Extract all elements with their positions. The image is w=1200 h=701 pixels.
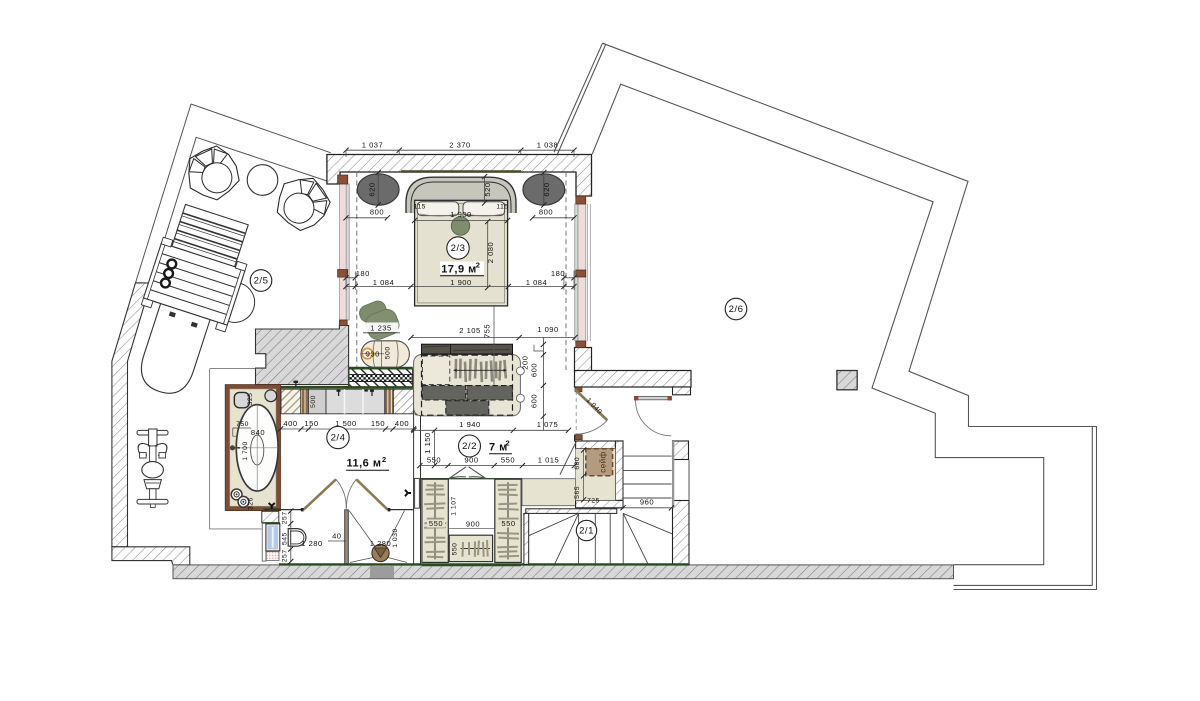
svg-text:115: 115 [414,203,426,210]
svg-text:1 075: 1 075 [537,420,559,429]
svg-text:1 940: 1 940 [459,420,481,429]
svg-text:2 370: 2 370 [449,140,471,149]
svg-text:550: 550 [429,519,443,528]
svg-text:180: 180 [551,269,565,278]
svg-text:17,9 м: 17,9 м [441,264,477,276]
svg-text:200: 200 [521,356,530,370]
svg-text:725: 725 [587,498,600,505]
svg-text:1 235: 1 235 [370,323,392,332]
svg-text:1 084: 1 084 [526,278,548,287]
svg-text:550: 550 [501,519,515,528]
svg-text:2 080: 2 080 [486,242,495,264]
svg-text:2: 2 [382,455,386,464]
svg-text:1 700: 1 700 [242,441,249,461]
svg-text:600: 600 [529,394,538,408]
svg-text:2/1: 2/1 [579,526,594,537]
svg-text:1 150: 1 150 [423,432,432,454]
svg-text:400: 400 [395,419,409,428]
svg-text:550: 550 [501,455,515,464]
svg-text:2: 2 [506,439,510,448]
svg-text:180: 180 [356,269,370,278]
svg-text:500: 500 [384,346,391,359]
svg-text:40: 40 [332,531,341,540]
svg-text:2/4: 2/4 [331,433,346,444]
svg-text:1 084: 1 084 [373,278,395,287]
svg-text:1 280: 1 280 [370,539,392,548]
svg-text:11,6 м: 11,6 м [347,458,382,470]
svg-text:900: 900 [466,520,480,529]
svg-text:2 105: 2 105 [459,326,481,335]
svg-text:1 280: 1 280 [301,539,323,548]
svg-text:400: 400 [283,419,297,428]
svg-text:150: 150 [371,419,385,428]
svg-text:500: 500 [310,395,317,408]
svg-text:сейф: сейф [599,451,608,473]
svg-text:960: 960 [640,497,654,506]
svg-text:550: 550 [451,543,458,556]
svg-text:1 030: 1 030 [392,528,399,548]
svg-text:1 900: 1 900 [450,210,472,219]
svg-text:600: 600 [574,457,581,470]
svg-text:620: 620 [368,182,377,196]
svg-text:520: 520 [483,182,492,196]
svg-text:2/3: 2/3 [451,243,466,254]
svg-text:257: 257 [281,549,288,562]
svg-text:326: 326 [248,497,255,510]
svg-text:1 107: 1 107 [450,496,457,516]
svg-text:565: 565 [574,486,581,499]
svg-text:115: 115 [496,203,508,210]
svg-text:2/5: 2/5 [254,276,269,287]
svg-text:620: 620 [542,182,551,196]
svg-text:150: 150 [304,419,318,428]
svg-text:1 037: 1 037 [362,140,384,149]
svg-text:600: 600 [529,363,538,377]
svg-text:545: 545 [281,532,288,545]
svg-text:257: 257 [281,511,288,524]
svg-text:325: 325 [247,393,254,406]
svg-text:840: 840 [251,428,265,437]
svg-text:550: 550 [427,455,441,464]
svg-text:755: 755 [483,324,492,338]
svg-text:750: 750 [236,421,249,428]
svg-text:2/2: 2/2 [462,441,477,452]
svg-text:800: 800 [539,207,553,216]
svg-text:1 015: 1 015 [538,455,560,464]
svg-text:2/6: 2/6 [729,304,744,315]
svg-text:1 038: 1 038 [537,140,559,149]
svg-text:1 900: 1 900 [450,278,472,287]
svg-text:2: 2 [476,261,480,270]
svg-text:1 090: 1 090 [537,325,559,334]
svg-text:800: 800 [370,207,384,216]
